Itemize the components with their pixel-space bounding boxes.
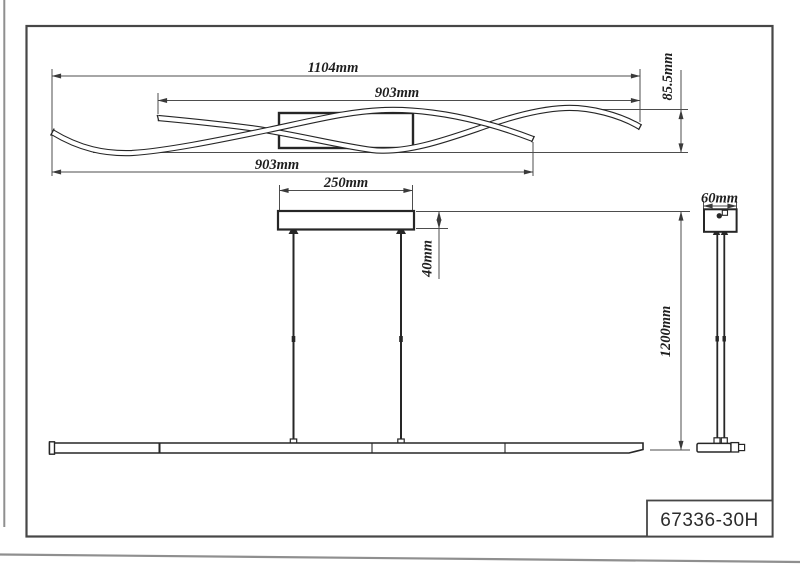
drawing-frame bbox=[27, 26, 773, 537]
drawing-canvas: 1104mm 903mm 903mm 85.5mm bbox=[0, 0, 800, 565]
cable-connector-block bbox=[722, 210, 727, 215]
top-view: 1104mm 903mm 903mm 85.5mm bbox=[51, 53, 688, 176]
technical-drawing-page: 1104mm 903mm 903mm 85.5mm bbox=[0, 0, 800, 565]
dim-label-suspension-drop: 1200mm bbox=[658, 306, 674, 358]
side-suspension-rods bbox=[713, 232, 728, 438]
title-block: 67336-30H bbox=[647, 501, 773, 537]
part-number: 67336-30H bbox=[660, 510, 759, 531]
side-canopy bbox=[704, 209, 737, 232]
cable-connector-dot bbox=[717, 213, 722, 218]
suspension-rods bbox=[289, 230, 407, 445]
dim-label-canopy-height: 40mm bbox=[420, 240, 436, 278]
side-view: 60mm bbox=[697, 191, 745, 453]
dim-label-right-wave: 903mm bbox=[375, 85, 419, 101]
dim-label-canopy-width: 250mm bbox=[323, 175, 368, 191]
front-canopy bbox=[278, 211, 414, 230]
side-bar-bracket bbox=[697, 438, 745, 452]
front-view: 250mm 40mm 1200mm bbox=[50, 175, 691, 454]
light-bar bbox=[50, 442, 644, 454]
dim-label-canopy-depth: 60mm bbox=[701, 191, 738, 207]
dim-label-left-wave: 903mm bbox=[255, 157, 299, 173]
dim-label-wave-height: 85.5mm bbox=[660, 53, 676, 101]
dim-label-total-width: 1104mm bbox=[308, 60, 359, 76]
rod-joint-left bbox=[292, 336, 296, 342]
rod-joint-right bbox=[399, 336, 403, 342]
bar-end-cap bbox=[50, 442, 55, 454]
